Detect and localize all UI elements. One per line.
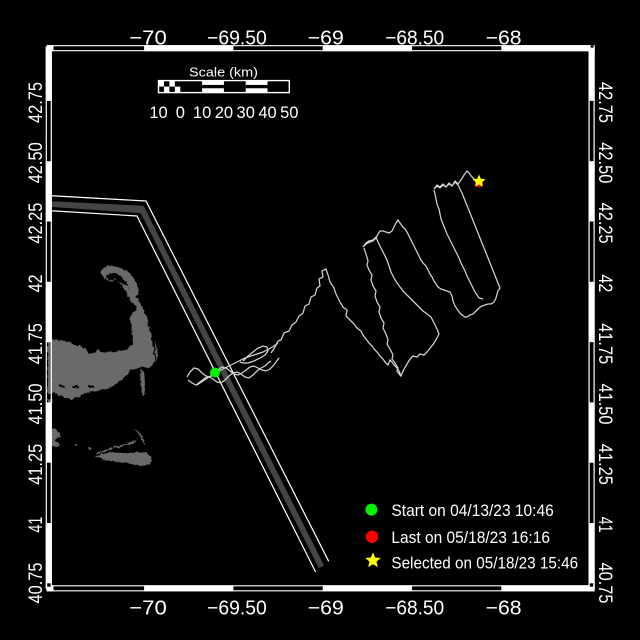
svg-text:−70: −70 [129,597,167,619]
svg-text:41.25: 41.25 [26,444,47,485]
svg-text:42.75: 42.75 [594,82,615,123]
svg-text:Start on 04/13/23 10:46: Start on 04/13/23 10:46 [391,501,553,520]
svg-text:−68: −68 [486,597,522,619]
svg-text:41.50: 41.50 [594,384,615,425]
svg-text:41.75: 41.75 [26,323,47,364]
svg-text:0: 0 [176,104,185,122]
svg-text:42.50: 42.50 [594,142,615,183]
svg-text:−68: −68 [486,27,522,49]
svg-text:42: 42 [26,274,47,292]
svg-text:41: 41 [594,517,615,533]
svg-text:42.75: 42.75 [26,82,47,123]
svg-text:30: 30 [237,104,255,122]
svg-text:10: 10 [149,104,167,122]
svg-text:42: 42 [594,274,615,292]
svg-text:−69: −69 [308,597,344,619]
svg-text:41.50: 41.50 [26,384,47,425]
svg-text:50: 50 [280,104,298,122]
svg-text:41.25: 41.25 [594,444,615,485]
svg-text:Scale (km): Scale (km) [189,65,258,80]
svg-text:−68.50: −68.50 [385,597,444,619]
svg-text:40: 40 [258,104,276,122]
svg-text:40.75: 40.75 [594,563,615,604]
svg-text:−69.50: −69.50 [207,597,267,619]
svg-text:42.25: 42.25 [594,203,615,244]
svg-text:42.50: 42.50 [26,142,47,183]
svg-text:Selected on 05/18/23 15:46: Selected on 05/18/23 15:46 [391,554,578,573]
svg-text:42.25: 42.25 [26,203,47,244]
svg-text:−69.50: −69.50 [207,27,267,49]
svg-text:Last on 05/18/23 16:16: Last on 05/18/23 16:16 [391,528,550,547]
svg-text:−70: −70 [129,27,167,49]
svg-text:−68.50: −68.50 [385,27,444,49]
svg-text:41: 41 [26,517,47,533]
svg-text:20: 20 [215,104,233,122]
svg-text:41.75: 41.75 [594,323,615,364]
svg-text:10: 10 [193,104,211,122]
svg-text:−69: −69 [308,27,344,49]
svg-text:40.75: 40.75 [26,563,47,604]
